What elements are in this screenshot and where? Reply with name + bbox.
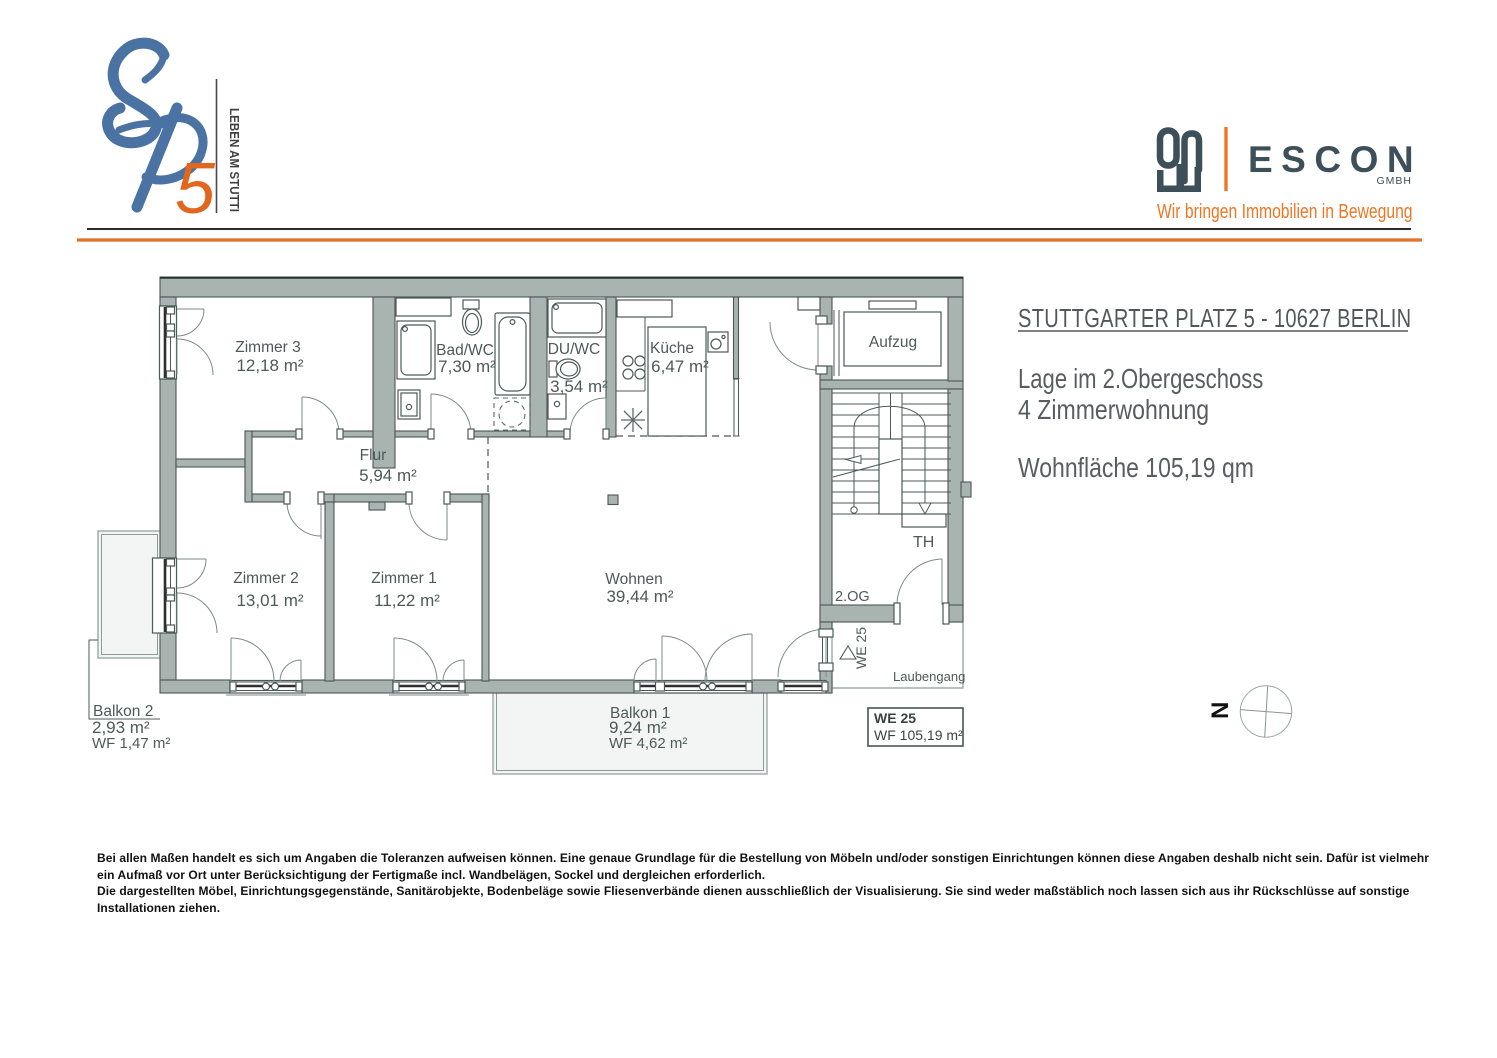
svg-text:STUTTGARTER PLATZ 5 - 10627 BE: STUTTGARTER PLATZ 5 - 10627 BERLIN bbox=[1018, 304, 1411, 333]
svg-text:DU/WC: DU/WC bbox=[548, 341, 601, 358]
svg-text:11,22 m²: 11,22 m² bbox=[374, 591, 440, 610]
svg-text:Die dargestellten Möbel, Einri: Die dargestellten Möbel, Einrichtungsgeg… bbox=[97, 884, 1410, 898]
svg-text:Aufzug: Aufzug bbox=[869, 334, 917, 351]
svg-text:Wohnen: Wohnen bbox=[605, 571, 662, 588]
svg-text:5: 5 bbox=[175, 149, 216, 229]
svg-text:13,01 m²: 13,01 m² bbox=[236, 591, 303, 610]
svg-text:Laubengang: Laubengang bbox=[893, 669, 965, 684]
svg-text:39,44 m²: 39,44 m² bbox=[606, 587, 673, 606]
svg-text:Lage im 2.Obergeschoss: Lage im 2.Obergeschoss bbox=[1018, 364, 1263, 395]
svg-text:Zimmer 1: Zimmer 1 bbox=[371, 570, 436, 587]
svg-text:ein Aufmaß vor Ort unter Berüc: ein Aufmaß vor Ort unter Berücksichtigun… bbox=[97, 868, 765, 882]
svg-text:2.OG: 2.OG bbox=[835, 589, 870, 605]
svg-text:ESCON: ESCON bbox=[1248, 139, 1422, 180]
svg-text:Flur: Flur bbox=[360, 447, 387, 464]
svg-text:GMBH: GMBH bbox=[1377, 175, 1413, 187]
svg-text:Wir bringen Immobilien in Bewe: Wir bringen Immobilien in Bewegung bbox=[1157, 200, 1413, 222]
svg-text:Bei allen Maßen handelt es sic: Bei allen Maßen handelt es sich um Angab… bbox=[97, 851, 1429, 865]
svg-text:WE 25: WE 25 bbox=[874, 710, 916, 726]
svg-text:Installationen ziehen.: Installationen ziehen. bbox=[97, 901, 220, 915]
svg-text:7,30 m²: 7,30 m² bbox=[438, 357, 496, 376]
svg-text:LEBEN AM STUTTI: LEBEN AM STUTTI bbox=[227, 108, 242, 212]
svg-text:Zimmer 2: Zimmer 2 bbox=[233, 570, 298, 587]
svg-text:N: N bbox=[1207, 702, 1234, 719]
svg-text:Wohnfläche 105,19 qm: Wohnfläche 105,19 qm bbox=[1018, 453, 1254, 483]
svg-text:12,18 m²: 12,18 m² bbox=[236, 356, 303, 375]
svg-text:Küche: Küche bbox=[650, 340, 694, 357]
svg-text:6,47 m²: 6,47 m² bbox=[651, 357, 709, 376]
svg-text:4 Zimmerwohnung: 4 Zimmerwohnung bbox=[1018, 395, 1209, 425]
svg-text:WF 1,47 m²: WF 1,47 m² bbox=[92, 735, 170, 752]
svg-text:WE 25: WE 25 bbox=[853, 627, 869, 669]
svg-text:WF 105,19 m²: WF 105,19 m² bbox=[874, 727, 963, 743]
svg-text:3,54 m²: 3,54 m² bbox=[550, 377, 608, 396]
svg-text:WF 4,62 m²: WF 4,62 m² bbox=[609, 735, 687, 752]
svg-text:TH: TH bbox=[913, 534, 934, 551]
svg-text:5,94 m²: 5,94 m² bbox=[359, 466, 417, 485]
svg-text:Zimmer 3: Zimmer 3 bbox=[235, 339, 300, 356]
